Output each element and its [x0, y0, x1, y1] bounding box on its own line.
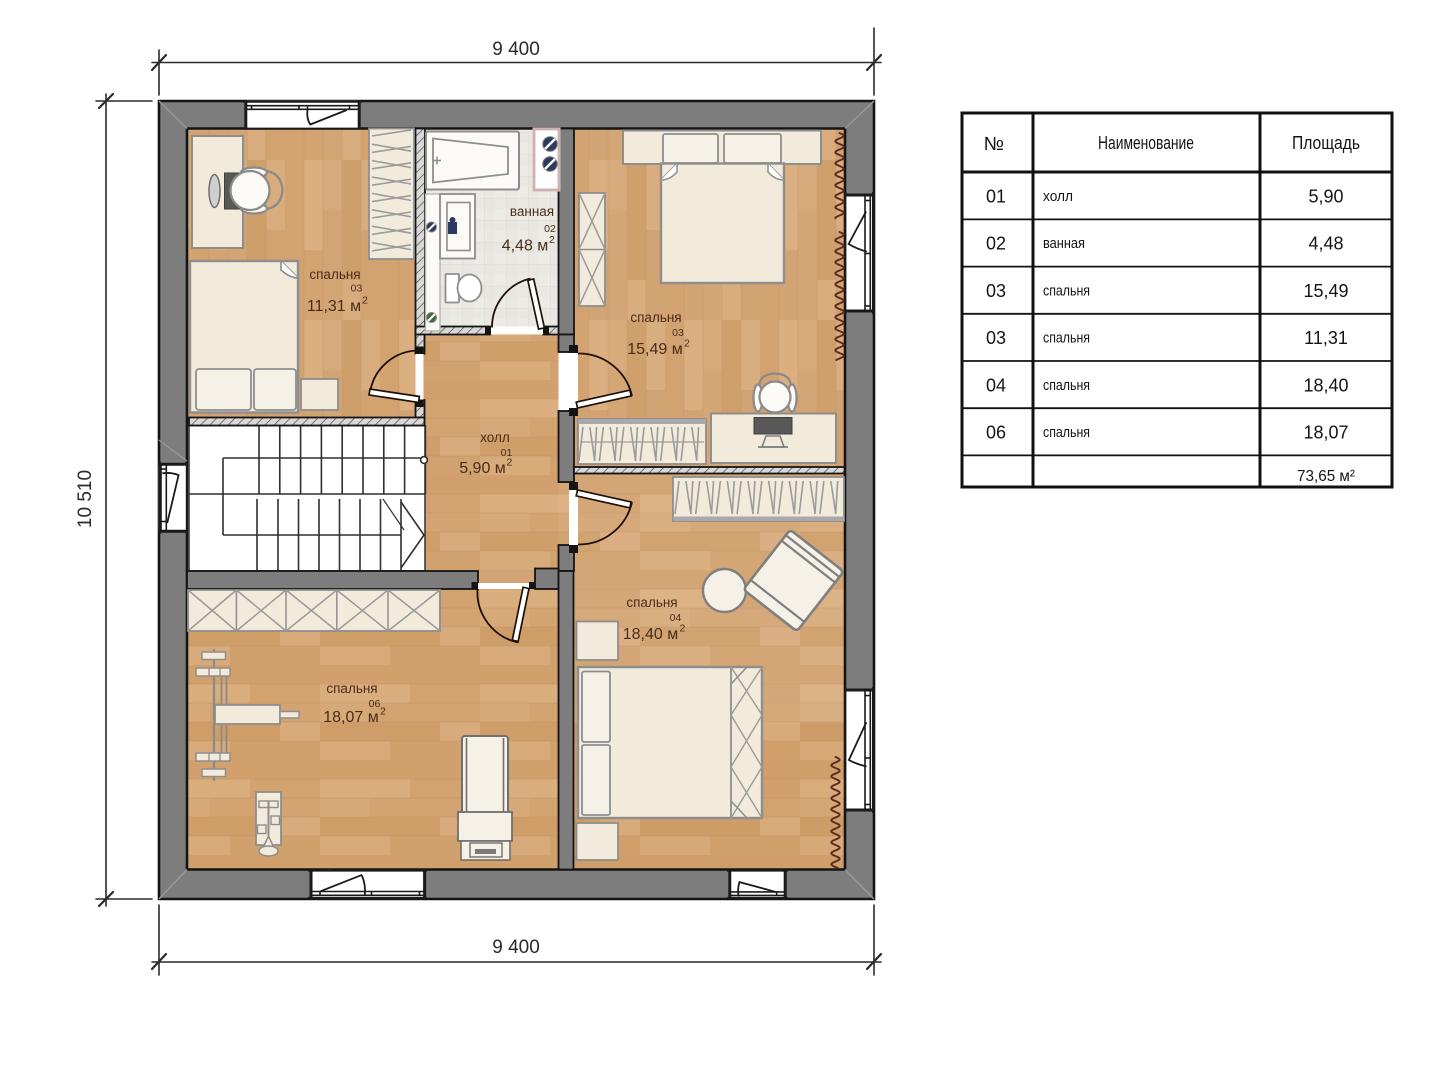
svg-text:2: 2 [684, 338, 690, 350]
svg-text:спальня: спальня [1043, 282, 1090, 299]
svg-text:04: 04 [986, 375, 1006, 395]
svg-text:18,07: 18,07 [1303, 423, 1348, 443]
svg-text:2: 2 [507, 457, 513, 469]
svg-text:2: 2 [680, 623, 686, 635]
svg-text:ванная: ванная [1043, 235, 1085, 252]
svg-text:11,31 м: 11,31 м [307, 298, 361, 315]
svg-text:02: 02 [986, 234, 1006, 254]
svg-text:9 400: 9 400 [492, 39, 540, 60]
svg-text:холл: холл [1043, 188, 1073, 205]
svg-text:спальня: спальня [1043, 377, 1090, 394]
svg-text:Наименование: Наименование [1098, 133, 1194, 153]
svg-text:03: 03 [351, 283, 363, 295]
svg-text:холл: холл [480, 430, 510, 445]
svg-text:ванная: ванная [510, 204, 554, 219]
svg-text:спальня: спальня [1043, 424, 1090, 441]
svg-text:спальня: спальня [626, 595, 677, 610]
svg-text:5,90: 5,90 [1308, 187, 1343, 207]
svg-text:18,07 м: 18,07 м [323, 709, 378, 726]
svg-text:18,40: 18,40 [1303, 375, 1348, 395]
svg-text:спальня: спальня [309, 267, 360, 282]
svg-text:4,48 м: 4,48 м [502, 238, 549, 255]
svg-text:2: 2 [362, 295, 368, 307]
svg-text:спальня: спальня [326, 681, 377, 696]
svg-text:15,49: 15,49 [1303, 281, 1348, 301]
svg-text:спальня: спальня [1043, 330, 1090, 347]
svg-text:2: 2 [380, 706, 386, 718]
svg-text:15,49 м: 15,49 м [627, 341, 682, 358]
svg-text:9 400: 9 400 [492, 937, 540, 958]
svg-text:10 510: 10 510 [75, 470, 96, 528]
svg-text:Площадь: Площадь [1292, 133, 1360, 153]
svg-text:03: 03 [986, 328, 1006, 348]
svg-text:01: 01 [986, 187, 1006, 207]
svg-text:06: 06 [986, 423, 1006, 443]
svg-text:73,65 м²: 73,65 м² [1297, 468, 1356, 485]
svg-text:спальня: спальня [630, 310, 681, 325]
svg-text:5,90 м: 5,90 м [459, 460, 506, 477]
svg-text:03: 03 [986, 281, 1006, 301]
svg-text:4,48: 4,48 [1308, 234, 1343, 254]
svg-text:18,40 м: 18,40 м [623, 626, 678, 643]
svg-text:№: № [984, 134, 1004, 155]
svg-text:11,31: 11,31 [1304, 328, 1348, 348]
svg-text:2: 2 [549, 234, 555, 246]
svg-text:03: 03 [672, 327, 684, 339]
